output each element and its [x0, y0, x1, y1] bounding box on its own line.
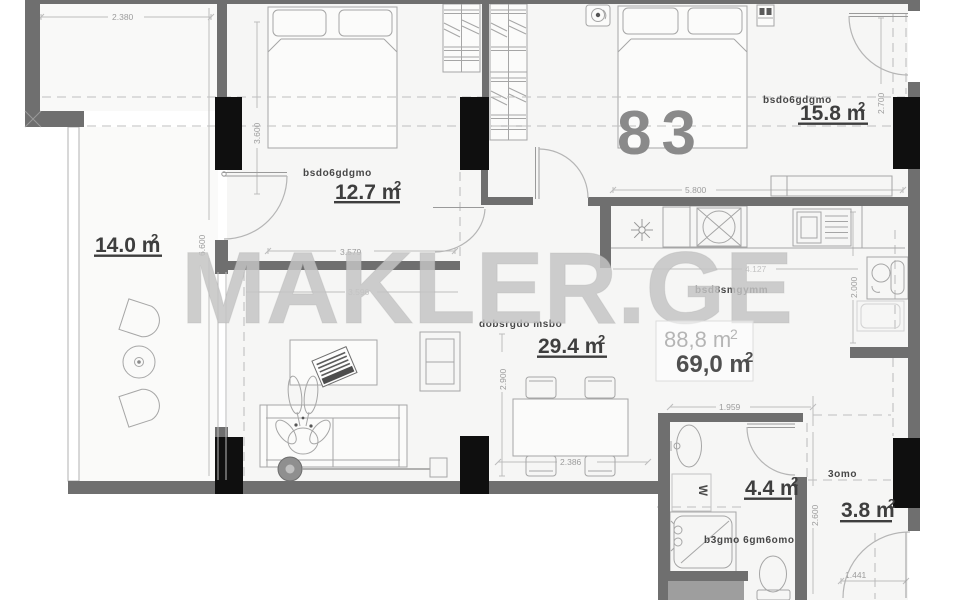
svg-text:bsdo6gdgmo: bsdo6gdgmo	[303, 168, 372, 179]
svg-text:83: 83	[617, 99, 706, 168]
svg-text:1.959: 1.959	[719, 402, 741, 412]
svg-text:2.000: 2.000	[849, 276, 859, 298]
svg-text:2.900: 2.900	[498, 368, 508, 390]
svg-text:5.800: 5.800	[685, 185, 707, 195]
svg-text:15.8 m: 15.8 m	[800, 102, 865, 125]
svg-text:2.600: 2.600	[810, 504, 820, 526]
svg-text:3omo: 3omo	[828, 469, 857, 480]
svg-text:2: 2	[888, 496, 895, 511]
svg-text:2: 2	[745, 349, 753, 366]
svg-text:2.386: 2.386	[560, 457, 582, 467]
svg-text:3.8 m: 3.8 m	[841, 499, 895, 522]
svg-text:12.7 m: 12.7 m	[335, 181, 400, 204]
svg-text:2: 2	[858, 99, 865, 114]
svg-text:2: 2	[394, 178, 401, 193]
svg-text:b3gmo 6gm6omo: b3gmo 6gm6omo	[704, 535, 795, 546]
svg-text:2: 2	[151, 231, 158, 246]
svg-text:2.700: 2.700	[876, 92, 886, 114]
svg-text:2: 2	[791, 474, 798, 489]
svg-text:88,8 m: 88,8 m	[664, 327, 731, 352]
svg-text:W: W	[696, 485, 708, 496]
svg-text:2.380: 2.380	[112, 12, 134, 22]
svg-text:2: 2	[730, 326, 738, 342]
svg-text:69,0 m: 69,0 m	[676, 351, 751, 378]
